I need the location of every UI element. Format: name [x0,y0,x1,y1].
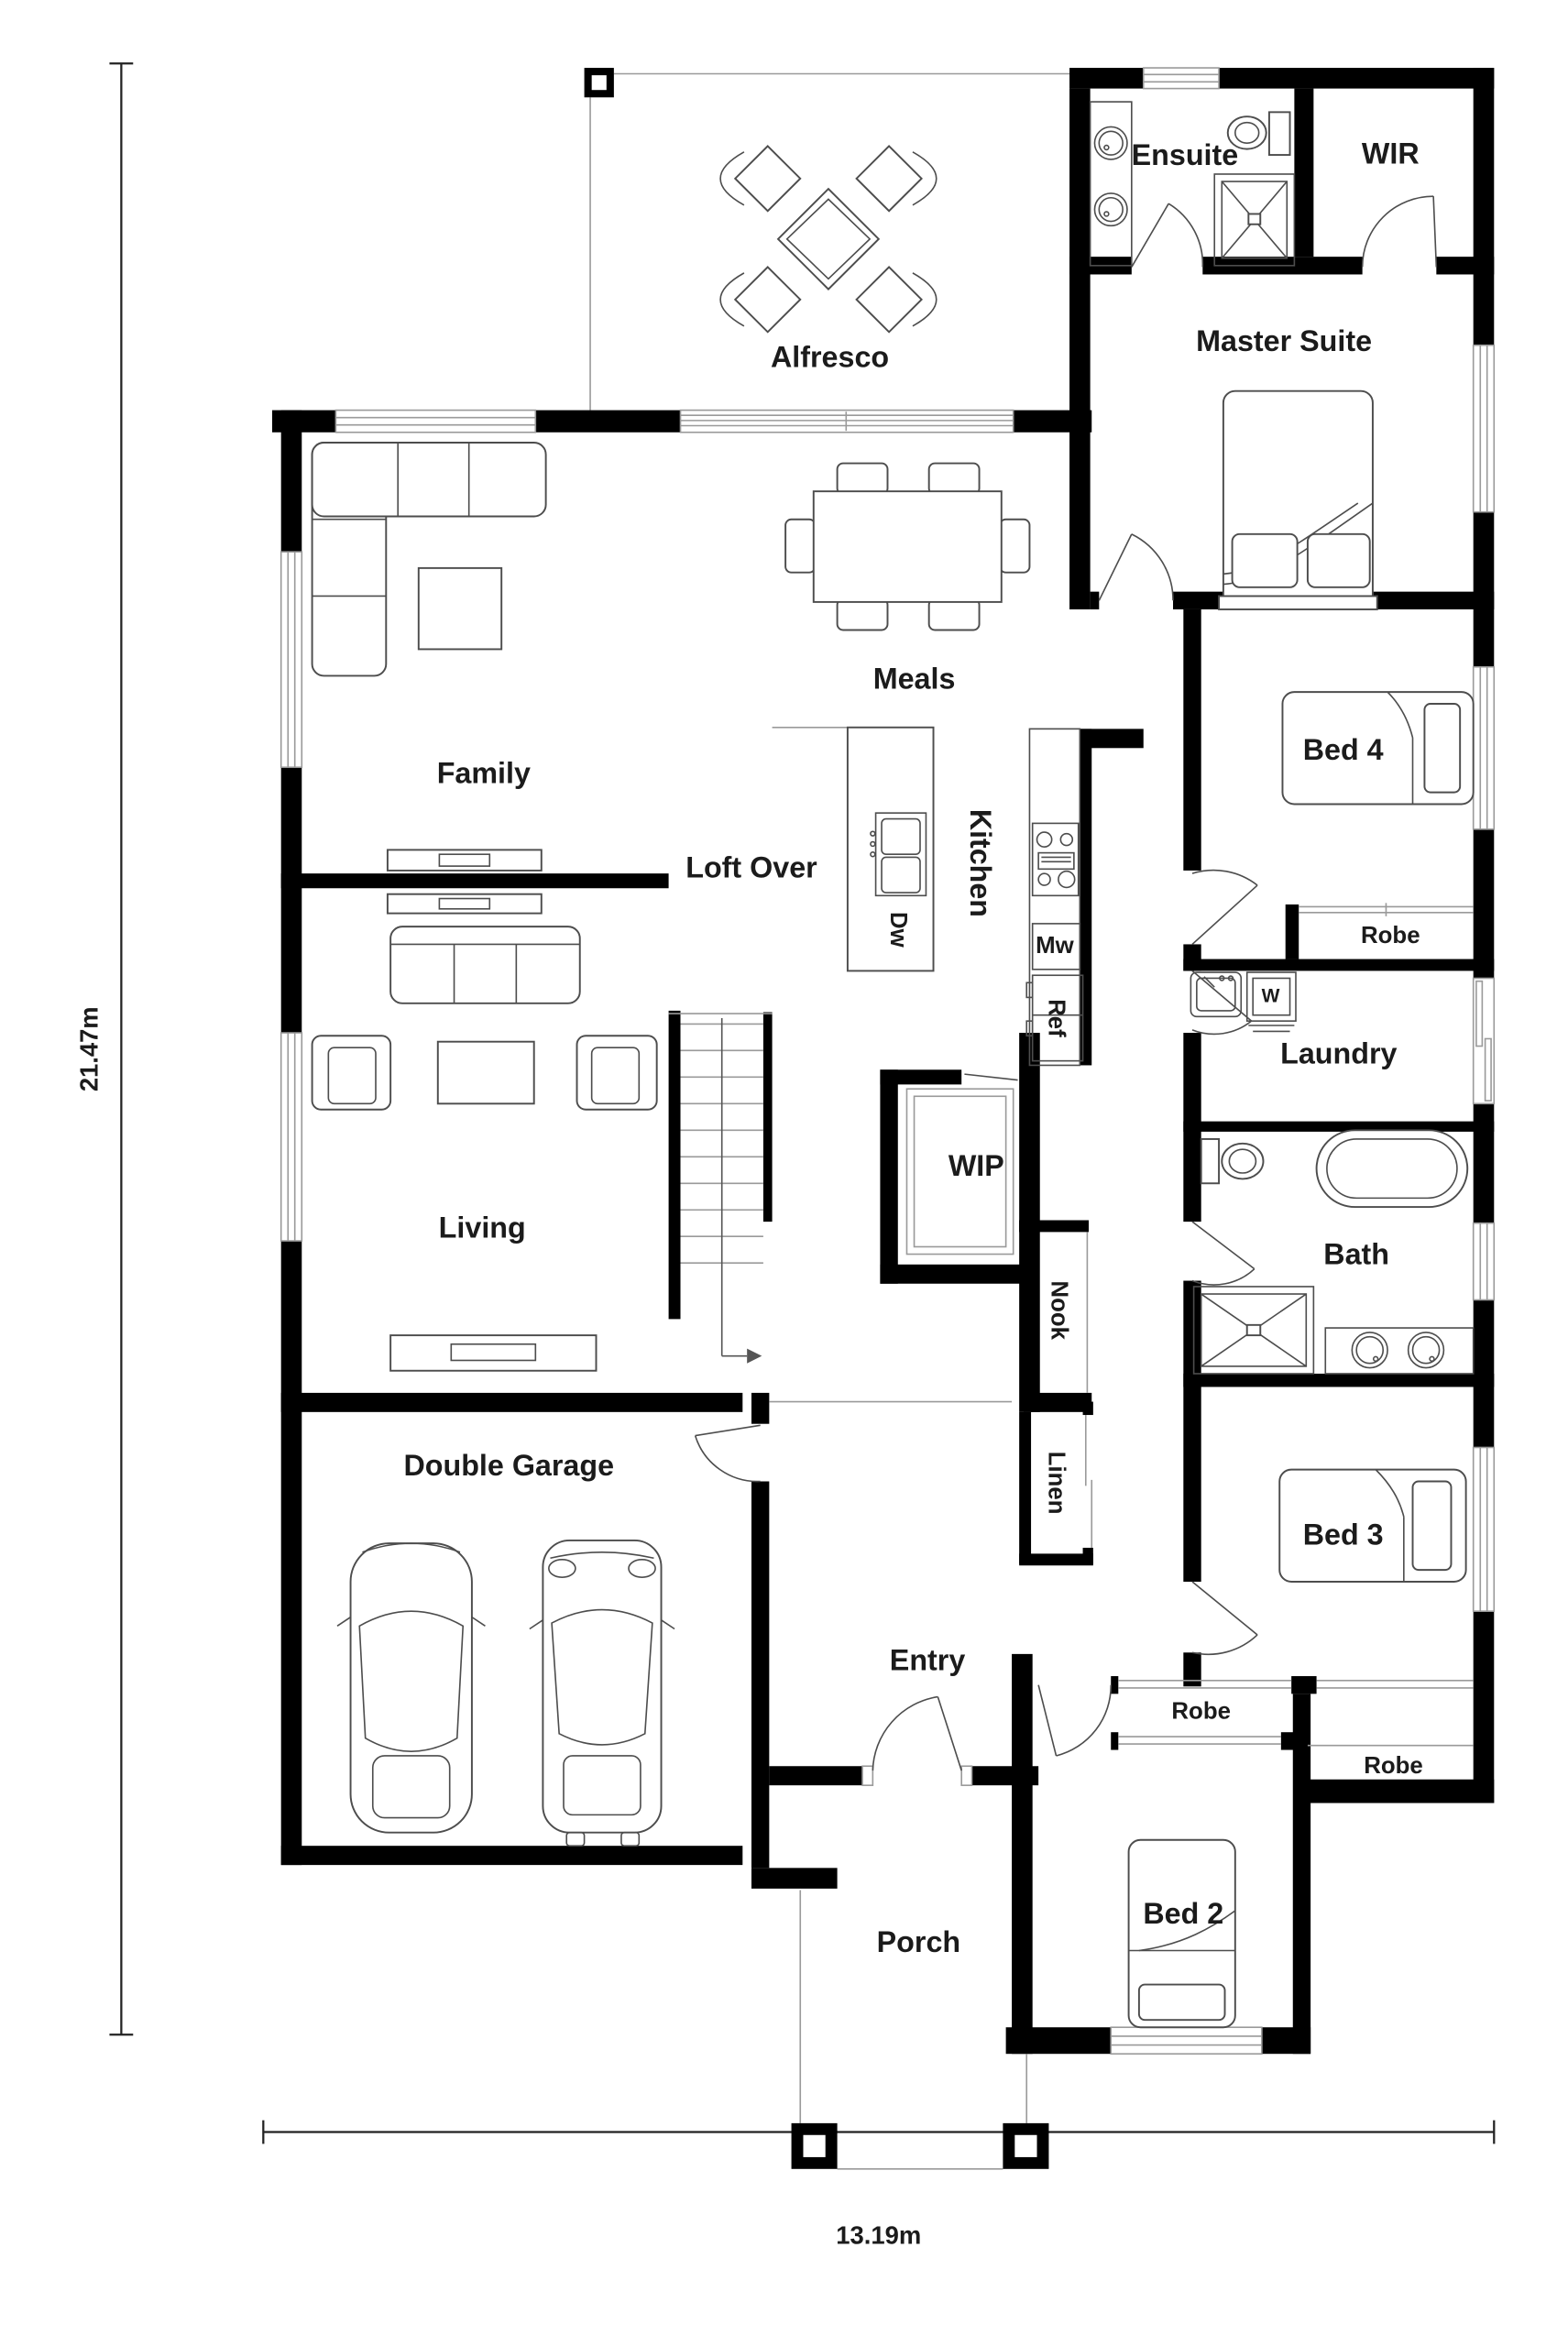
door-wir [1363,196,1437,267]
bath-toilet [1201,1139,1219,1183]
window-living-west [281,1033,302,1241]
car-1 [337,1543,485,1833]
window-family-west [281,552,302,767]
room-label-nook: Nook [1047,1281,1072,1341]
stairs [669,1014,773,1364]
height-dimension-label: 21.47m [74,1006,103,1091]
ensuite-toilet [1269,112,1290,155]
label-washer: W [1262,985,1280,1006]
family-sofa [313,443,546,675]
label-robe-bed3: Robe [1364,1753,1423,1779]
living-furniture [313,894,657,1371]
width-dimension-label: 13.19m [836,2221,921,2250]
room-label-laundry: Laundry [1280,1037,1397,1070]
room-label-kitchen: Kitchen [964,809,997,917]
door-master [1099,534,1173,600]
floor-plan-svg: 21.47m 13.19m Alfresco [0,0,1568,2346]
door-garage-internal [696,1425,761,1481]
stairs-direction-arrow [747,1349,762,1364]
master-bed [1219,391,1377,609]
room-label-bed2: Bed 2 [1143,1897,1223,1930]
family-tv-unit [388,850,542,871]
door-bath [1192,1222,1255,1285]
room-label-wir: WIR [1362,137,1420,170]
label-microwave: Mw [1036,933,1075,959]
kitchen-fixtures [773,728,1083,1066]
room-label-meals: Meals [873,663,956,696]
living-tv-unit [390,1335,596,1371]
garage-cars [337,1540,674,1846]
label-dishwasher: Dw [885,912,911,948]
laundry-fixtures [1190,972,1296,1031]
window-family-north [335,411,535,433]
door-ensuite [1132,203,1203,267]
living-coffee-table [438,1042,534,1104]
label-robe-bed2: Robe [1171,1699,1231,1725]
bed2-furniture [1129,1840,1235,2027]
door-wip [964,1074,1017,1080]
label-loft-over: Loft Over [685,851,817,884]
bath-tub [1317,1130,1468,1207]
room-label-bed4: Bed 4 [1303,733,1384,766]
alfresco-table [778,189,879,289]
room-label-alfresco: Alfresco [771,341,889,374]
room-label-bed3: Bed 3 [1303,1518,1384,1551]
room-label-master-suite: Master Suite [1196,324,1372,357]
window-bath [1474,1223,1495,1300]
window-master [1474,345,1495,512]
sliding-door-linen [1086,1415,1091,1548]
dimension-height: 21.47m [74,63,133,2034]
window-bed3 [1474,1447,1495,1611]
alfresco-area: Alfresco [585,68,1069,411]
door-bed2 [1038,1685,1111,1756]
door-bed4 [1192,871,1257,945]
door-front [862,1697,971,1786]
room-label-family: Family [437,757,531,790]
robe-tracks [1118,903,1473,1745]
living-sofa [390,926,580,1003]
room-label-entry: Entry [890,1643,966,1676]
door-bed3 [1192,1582,1257,1654]
room-label-living: Living [439,1211,526,1244]
room-label-bath: Bath [1323,1238,1389,1271]
label-robe-bed4: Robe [1361,923,1420,948]
car-2 [530,1540,674,1846]
room-label-garage: Double Garage [403,1449,614,1482]
family-ottoman [419,568,501,650]
room-label-porch: Porch [877,1925,960,1958]
label-linen: Linen [1043,1452,1069,1515]
window-ensuite [1144,68,1219,89]
window-bed2 [1111,2027,1262,2054]
meals-dining-set [785,464,1029,630]
ensuite-fixtures [1091,102,1295,266]
room-label-wip: WIP [948,1149,1004,1182]
window-bed4 [1474,667,1495,829]
floor-plan-page: 21.47m 13.19m Alfresco [0,0,1568,2346]
dimension-width: 13.19m [263,2121,1494,2250]
bath-vanity [1325,1328,1473,1374]
label-refrigerator: Ref [1043,999,1069,1037]
room-label-ensuite: Ensuite [1132,138,1239,171]
cooktop [1033,823,1079,895]
